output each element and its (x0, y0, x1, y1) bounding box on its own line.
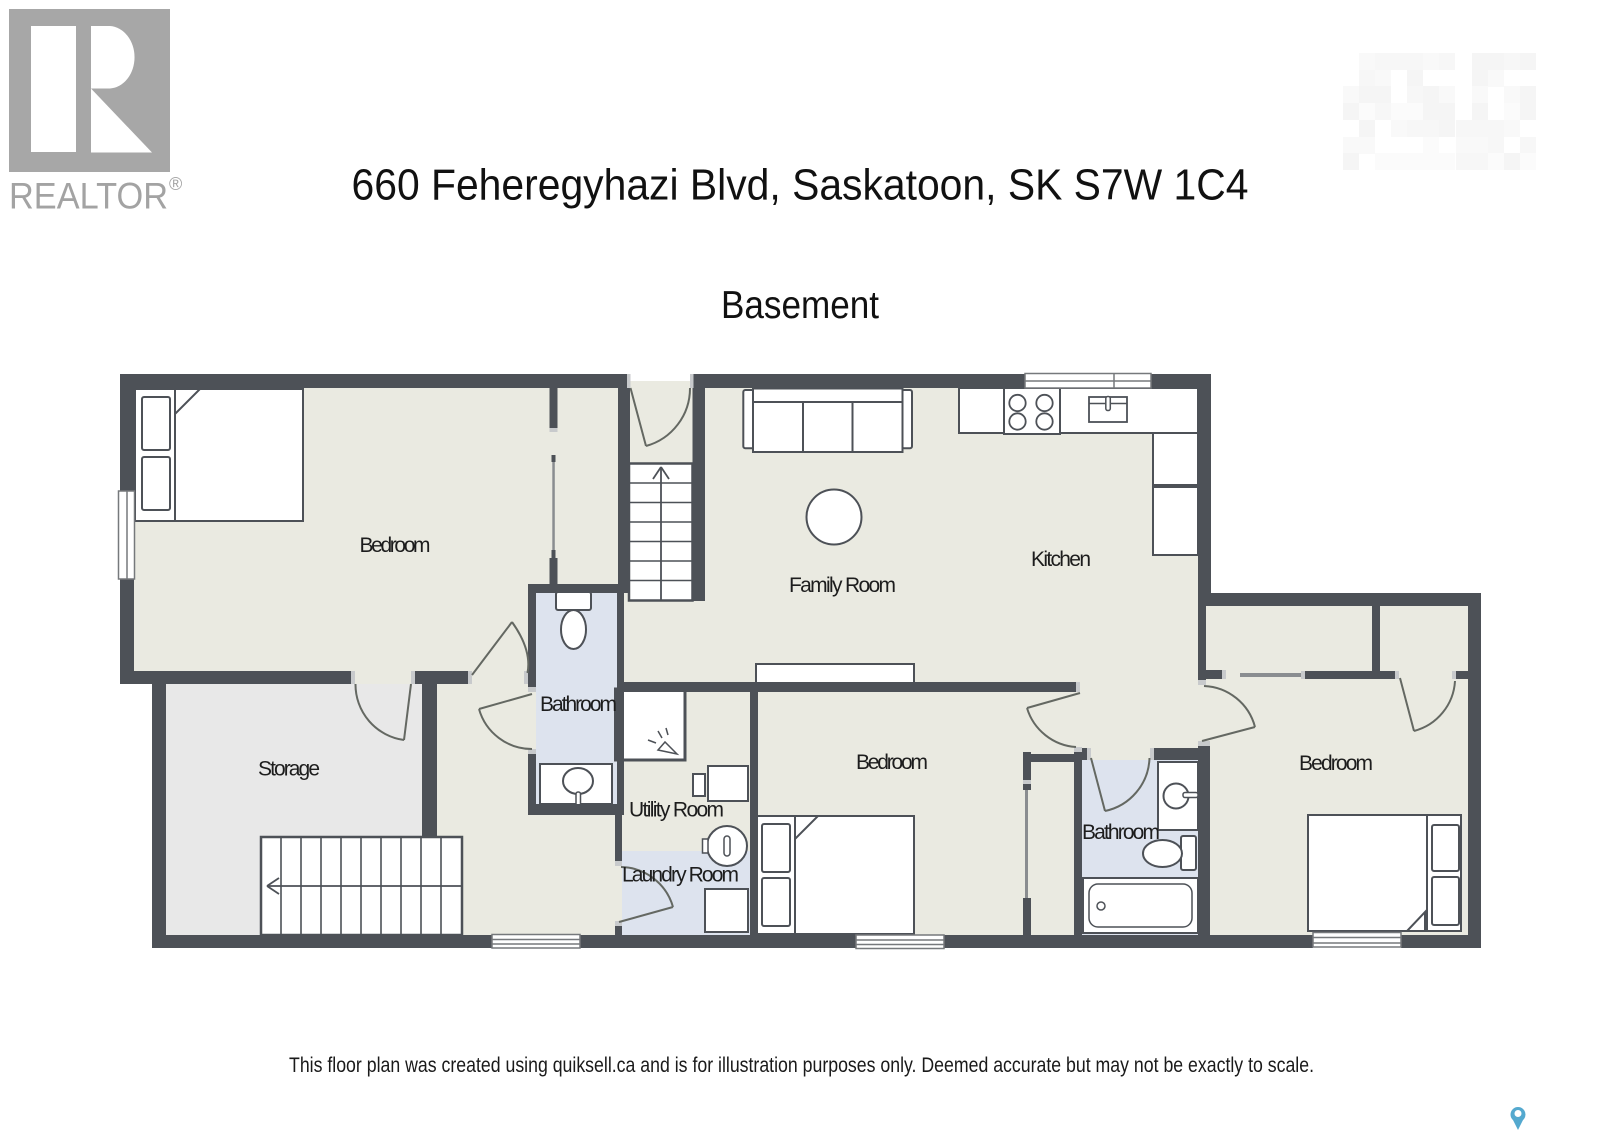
svg-text:Family Room: Family Room (789, 574, 896, 597)
svg-text:REALTOR: REALTOR (9, 176, 168, 217)
svg-text:Bedroom: Bedroom (1299, 752, 1373, 775)
svg-text:Bedroom: Bedroom (856, 751, 928, 774)
svg-text:Laundry Room: Laundry Room (622, 864, 739, 887)
svg-text:660 Feheregyhazi Blvd, Saskato: 660 Feheregyhazi Blvd, Saskatoon, SK S7W… (352, 161, 1249, 210)
svg-text:®: ® (169, 174, 182, 194)
svg-text:Bedroom: Bedroom (360, 534, 431, 557)
svg-text:This floor plan was created us: This floor plan was created using quikse… (289, 1054, 1314, 1077)
svg-text:Basement: Basement (721, 284, 879, 327)
svg-text:Storage: Storage (258, 758, 320, 781)
svg-text:Kitchen: Kitchen (1031, 548, 1091, 571)
svg-text:Bathroom: Bathroom (540, 693, 617, 716)
svg-text:Utility Room: Utility Room (629, 799, 724, 822)
svg-text:Bathroom: Bathroom (1082, 821, 1160, 844)
